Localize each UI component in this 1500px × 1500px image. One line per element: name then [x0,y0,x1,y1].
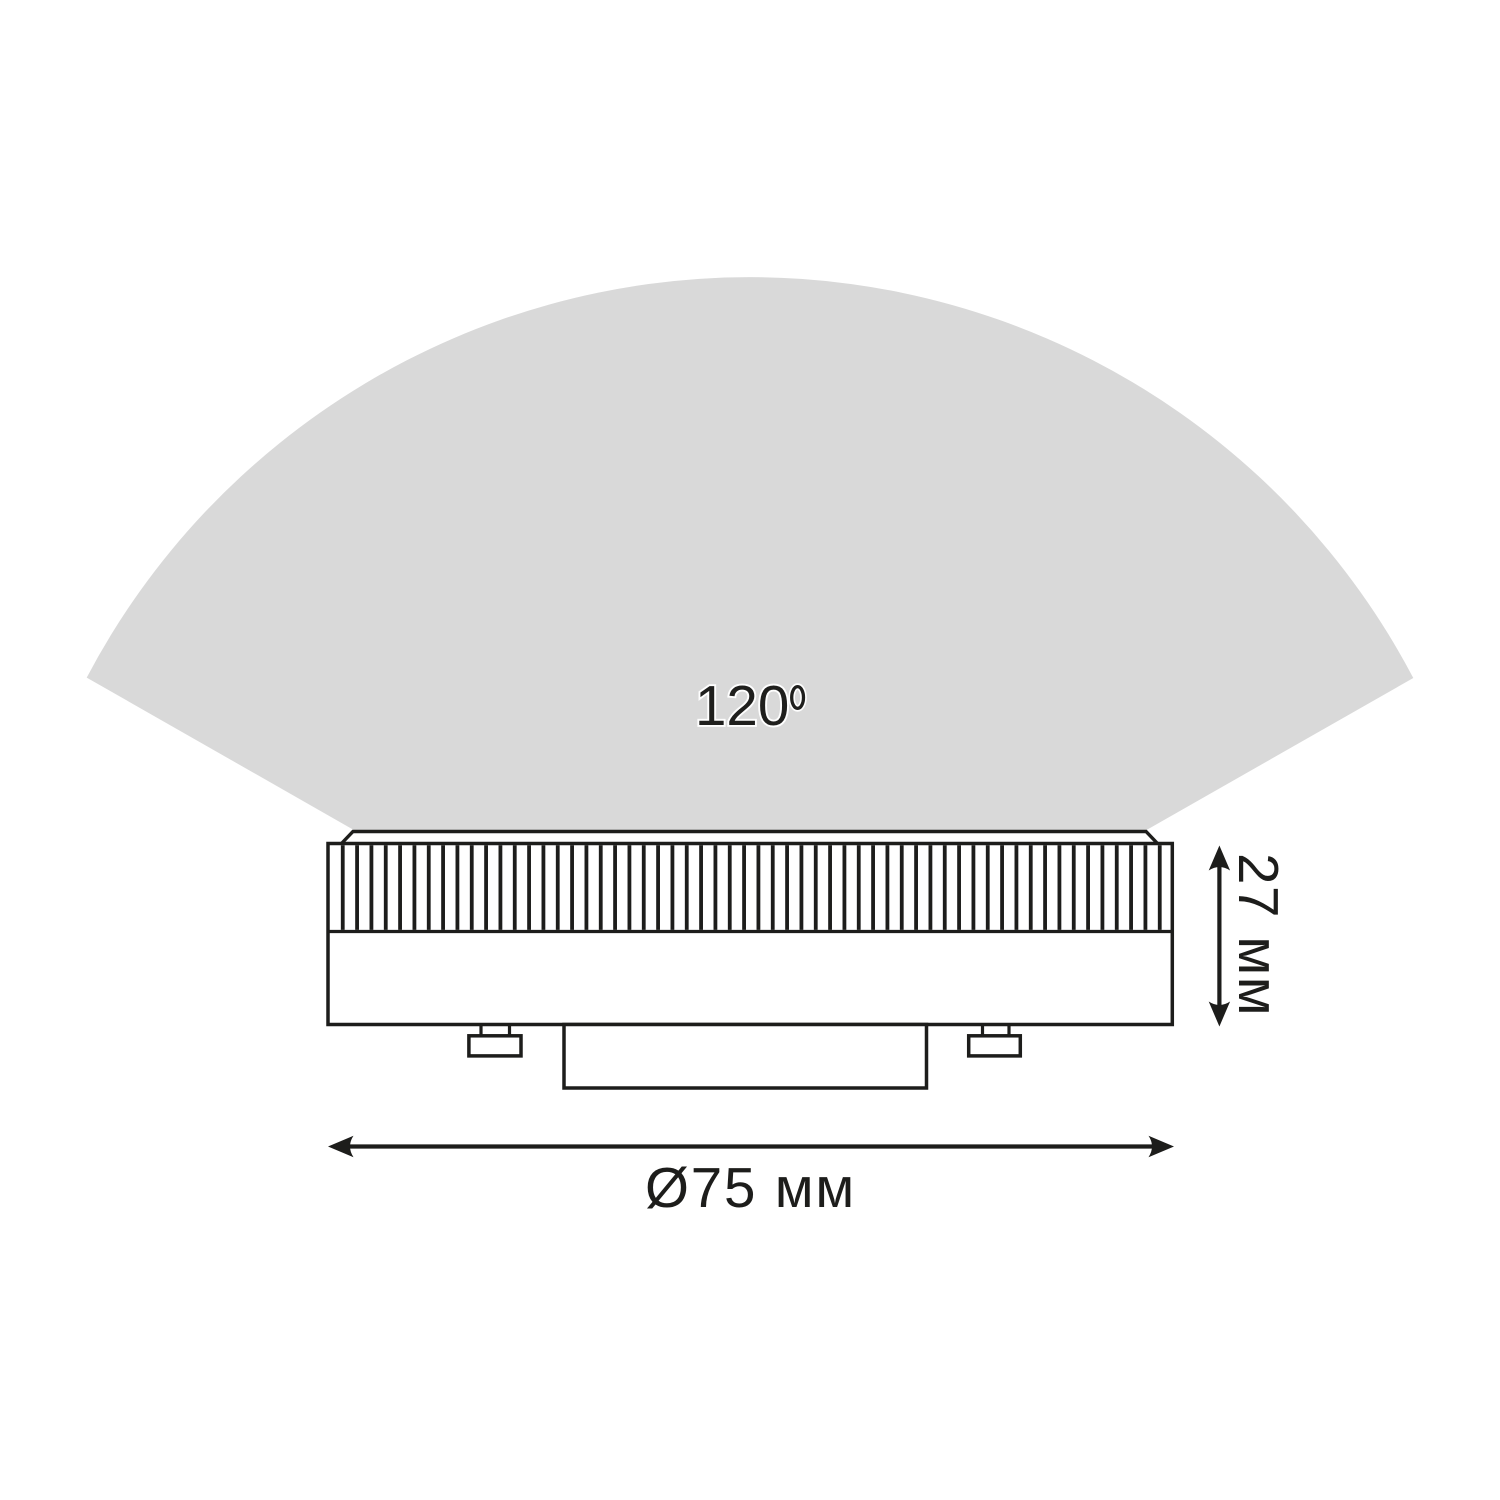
svg-text:120: 120 [695,674,789,737]
svg-text:27 мм: 27 мм [1227,853,1290,1017]
svg-text:Ø75 мм: Ø75 мм [645,1156,856,1219]
